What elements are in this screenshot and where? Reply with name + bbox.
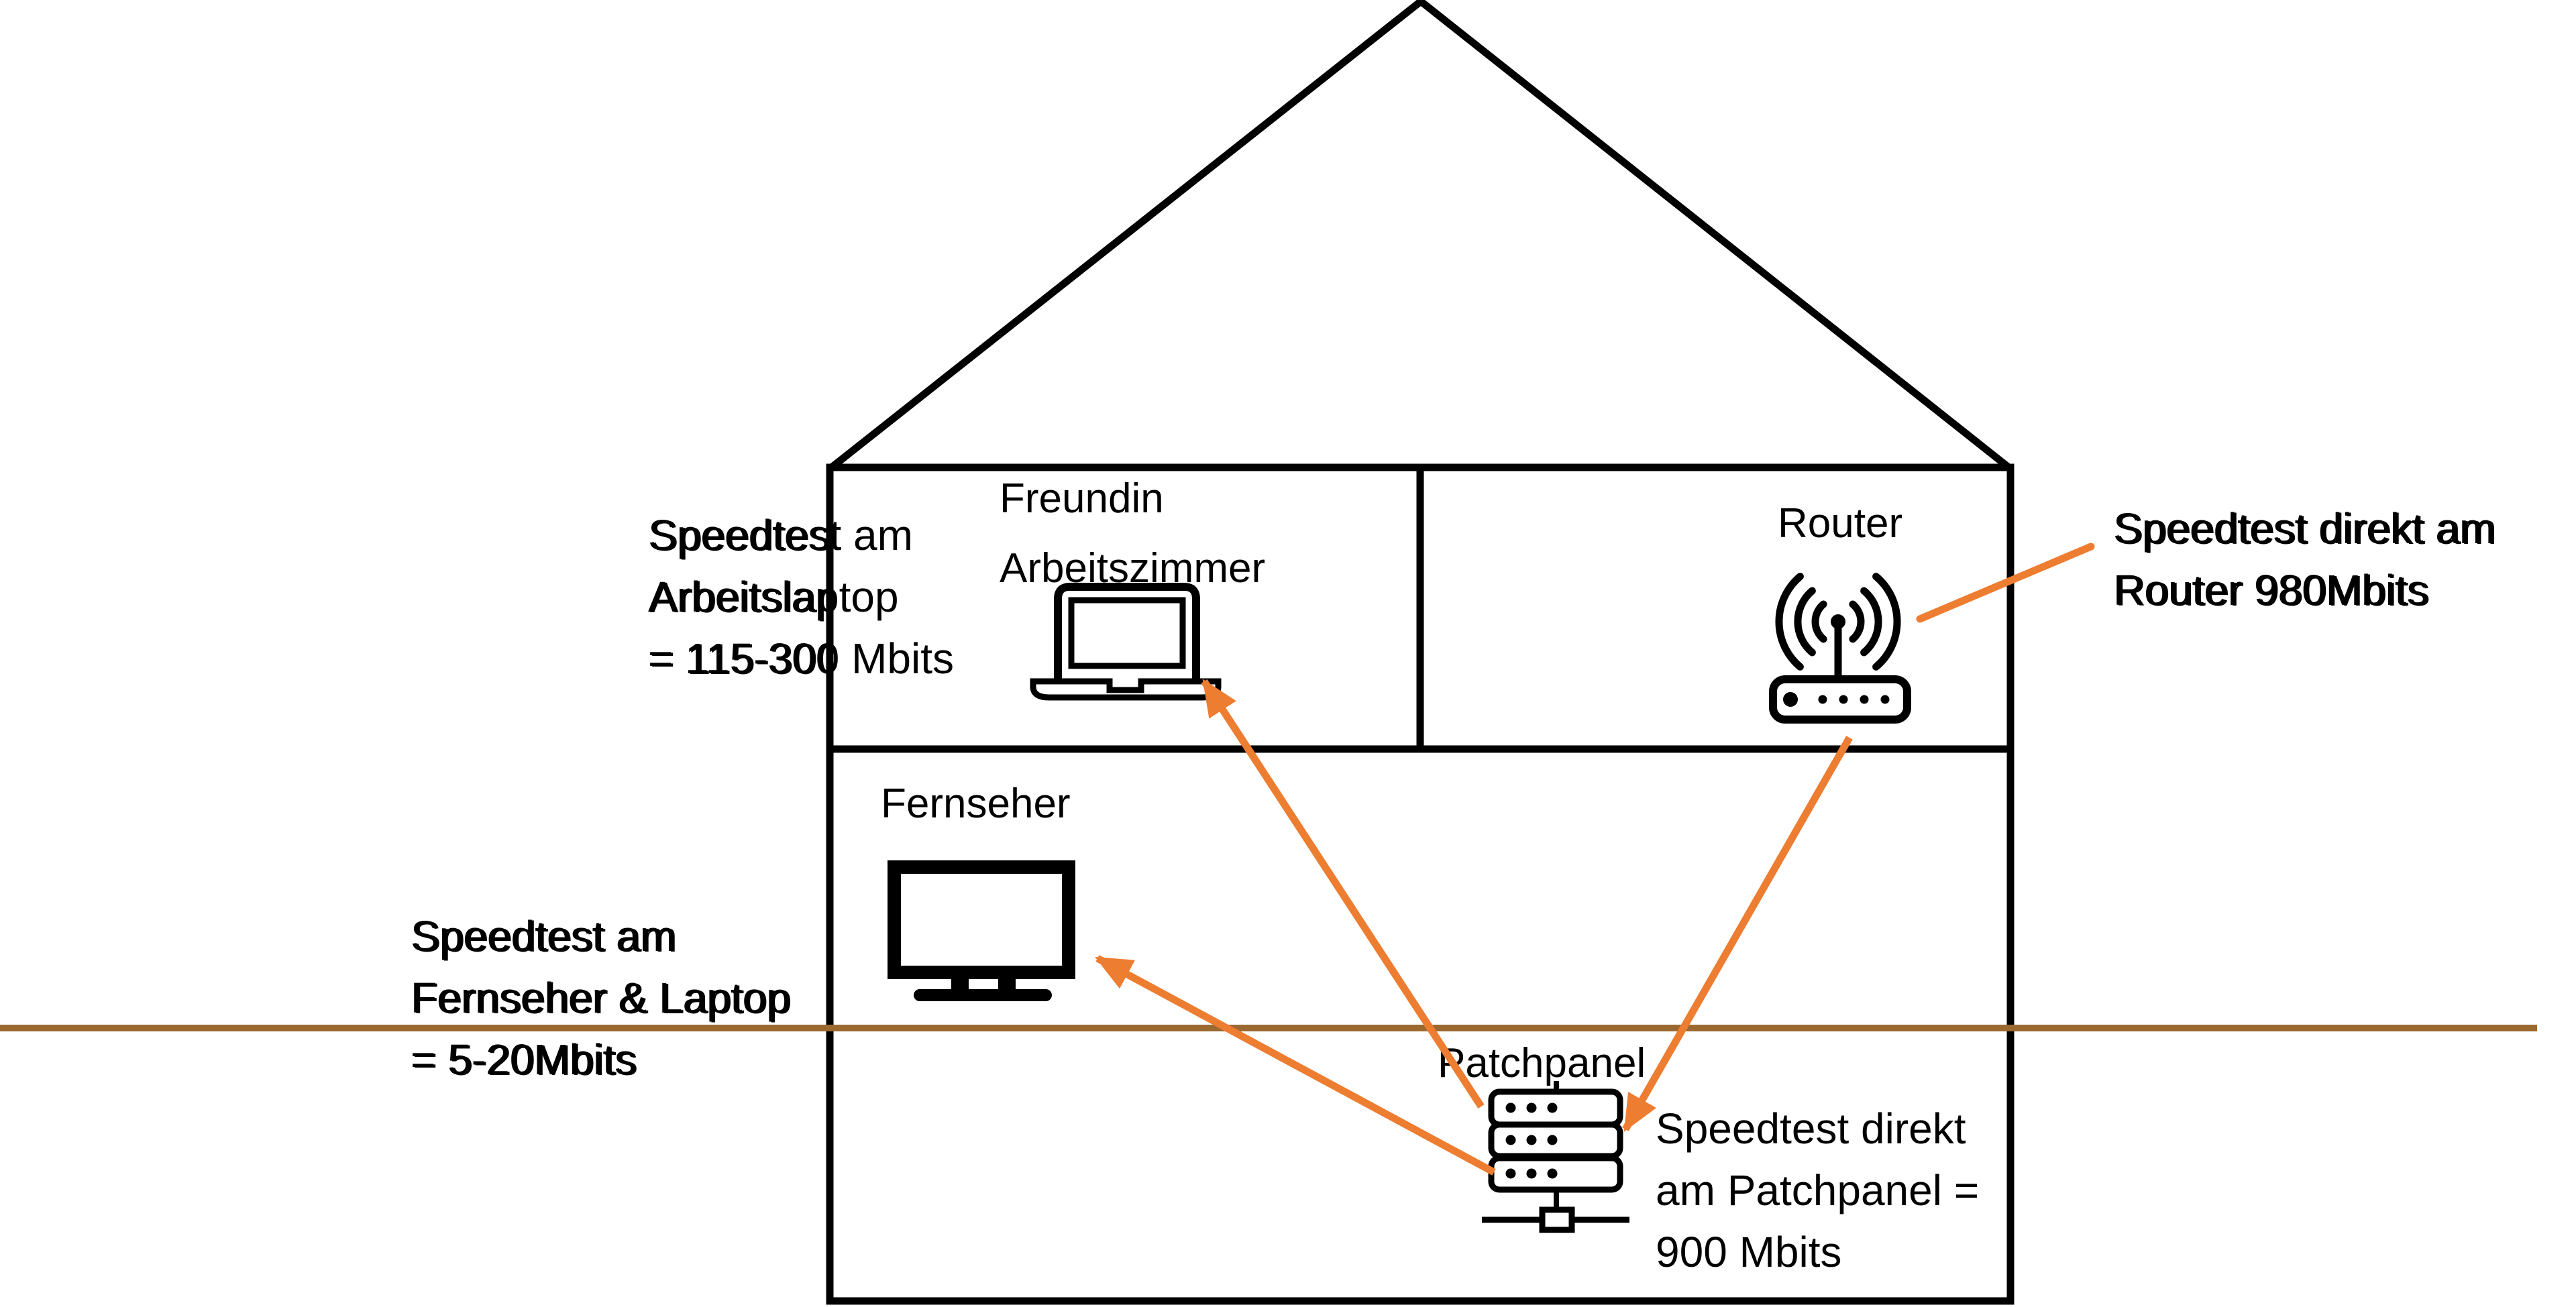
diagram-canvas: Speedtest am Arbeitslaptop = 115-300 Mbi…	[0, 0, 2576, 1307]
patchpanel-rack-icon	[1482, 1081, 1629, 1230]
tv-icon	[894, 867, 1069, 1001]
laptop-icon	[1033, 587, 1218, 697]
wifi-router-icon	[1773, 577, 1907, 720]
device-icons	[0, 0, 2576, 1307]
